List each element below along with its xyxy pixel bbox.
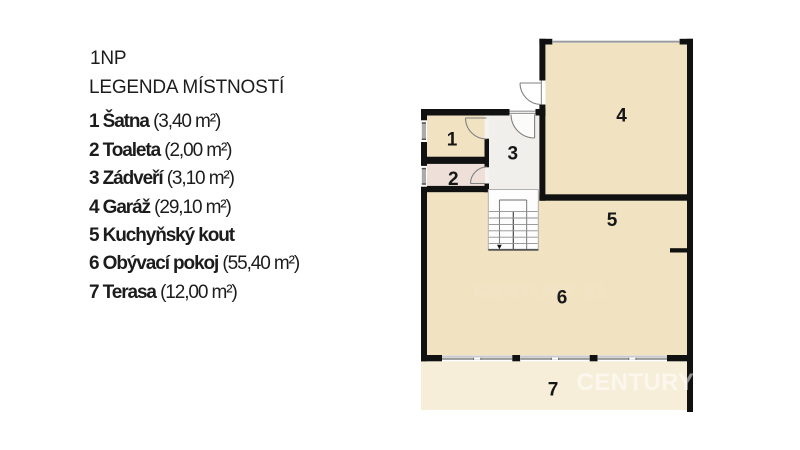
svg-text:5: 5 <box>607 210 618 231</box>
svg-text:2: 2 <box>448 169 459 190</box>
svg-text:3: 3 <box>508 144 519 165</box>
svg-text:4: 4 <box>616 105 627 126</box>
svg-text:7: 7 <box>548 380 559 401</box>
svg-text:1: 1 <box>447 129 458 150</box>
